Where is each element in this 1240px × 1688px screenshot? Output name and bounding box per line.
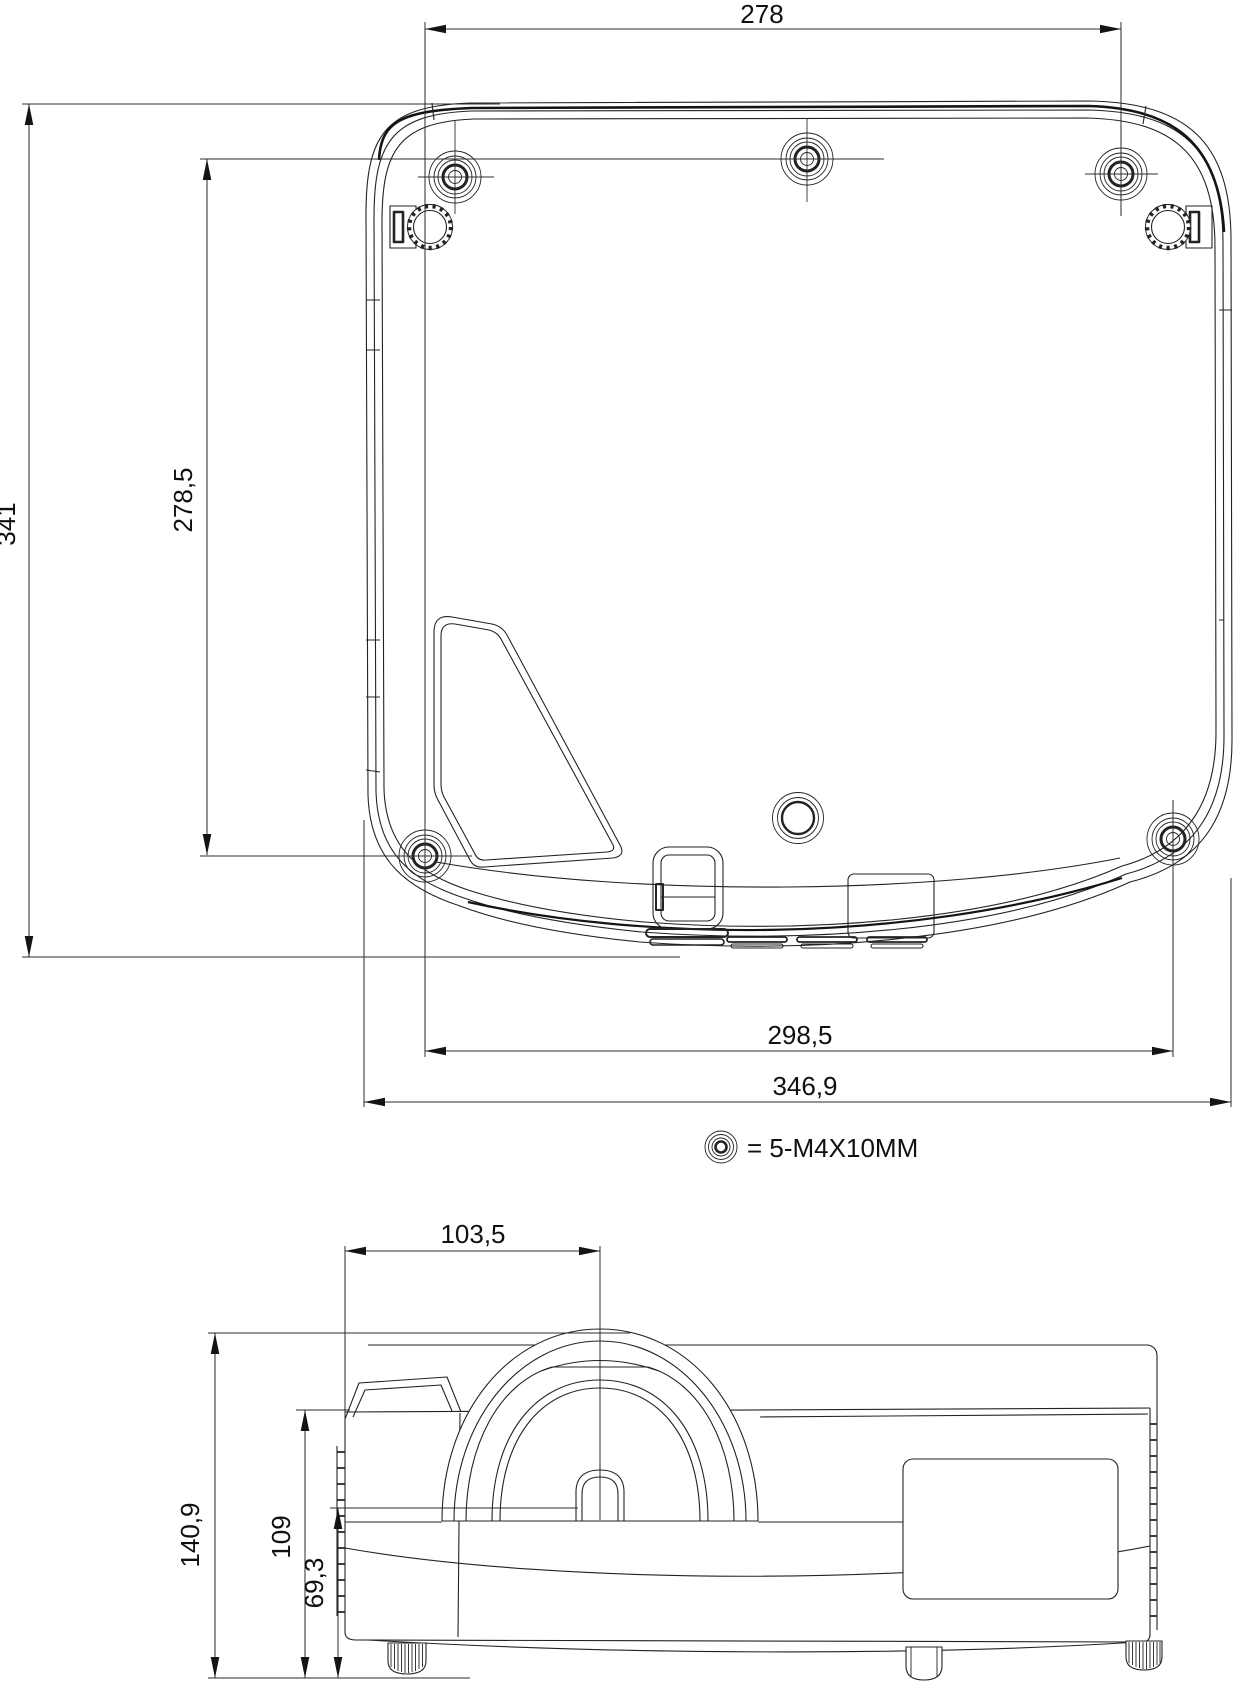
screw-legend-text: = 5-M4X10MM	[747, 1133, 918, 1163]
rear-foot-right	[1145, 204, 1212, 250]
dimension-drawing-page: 278 341 278,5 298,5 346,9 = 5-M4X10MM	[0, 0, 1240, 1688]
connector-panel	[903, 1459, 1118, 1599]
front-foot-left	[388, 1643, 426, 1674]
front-foot-right	[1126, 1641, 1162, 1670]
dim-label-69-3: 69,3	[299, 1558, 329, 1609]
front-foot-center	[906, 1647, 942, 1680]
dim-label-140-9: 140,9	[175, 1502, 205, 1567]
projector-dimensions-diagram: 278 341 278,5 298,5 346,9 = 5-M4X10MM	[0, 0, 1240, 1688]
bottom-view-dimensions: 278 341 278,5 298,5 346,9	[0, 0, 1231, 1107]
bottom-view-body	[366, 101, 1232, 948]
center-foot	[773, 793, 824, 844]
dim-label-298-5: 298,5	[767, 1020, 832, 1050]
dim-label-341: 341	[0, 502, 21, 545]
dim-label-109: 109	[266, 1515, 296, 1558]
vent-cutout	[434, 617, 622, 868]
dim-label-103-5: 103,5	[440, 1219, 505, 1249]
screw-hole-icon	[705, 1131, 737, 1163]
screw-legend: = 5-M4X10MM	[705, 1131, 918, 1163]
dim-label-278-5: 278,5	[168, 467, 198, 532]
rear-foot-left	[390, 204, 453, 250]
dim-label-278: 278	[740, 0, 783, 29]
rear-view-body	[337, 1329, 1162, 1680]
dim-label-346-9: 346,9	[772, 1071, 837, 1101]
mount-hole-crosshairs	[418, 118, 1158, 214]
